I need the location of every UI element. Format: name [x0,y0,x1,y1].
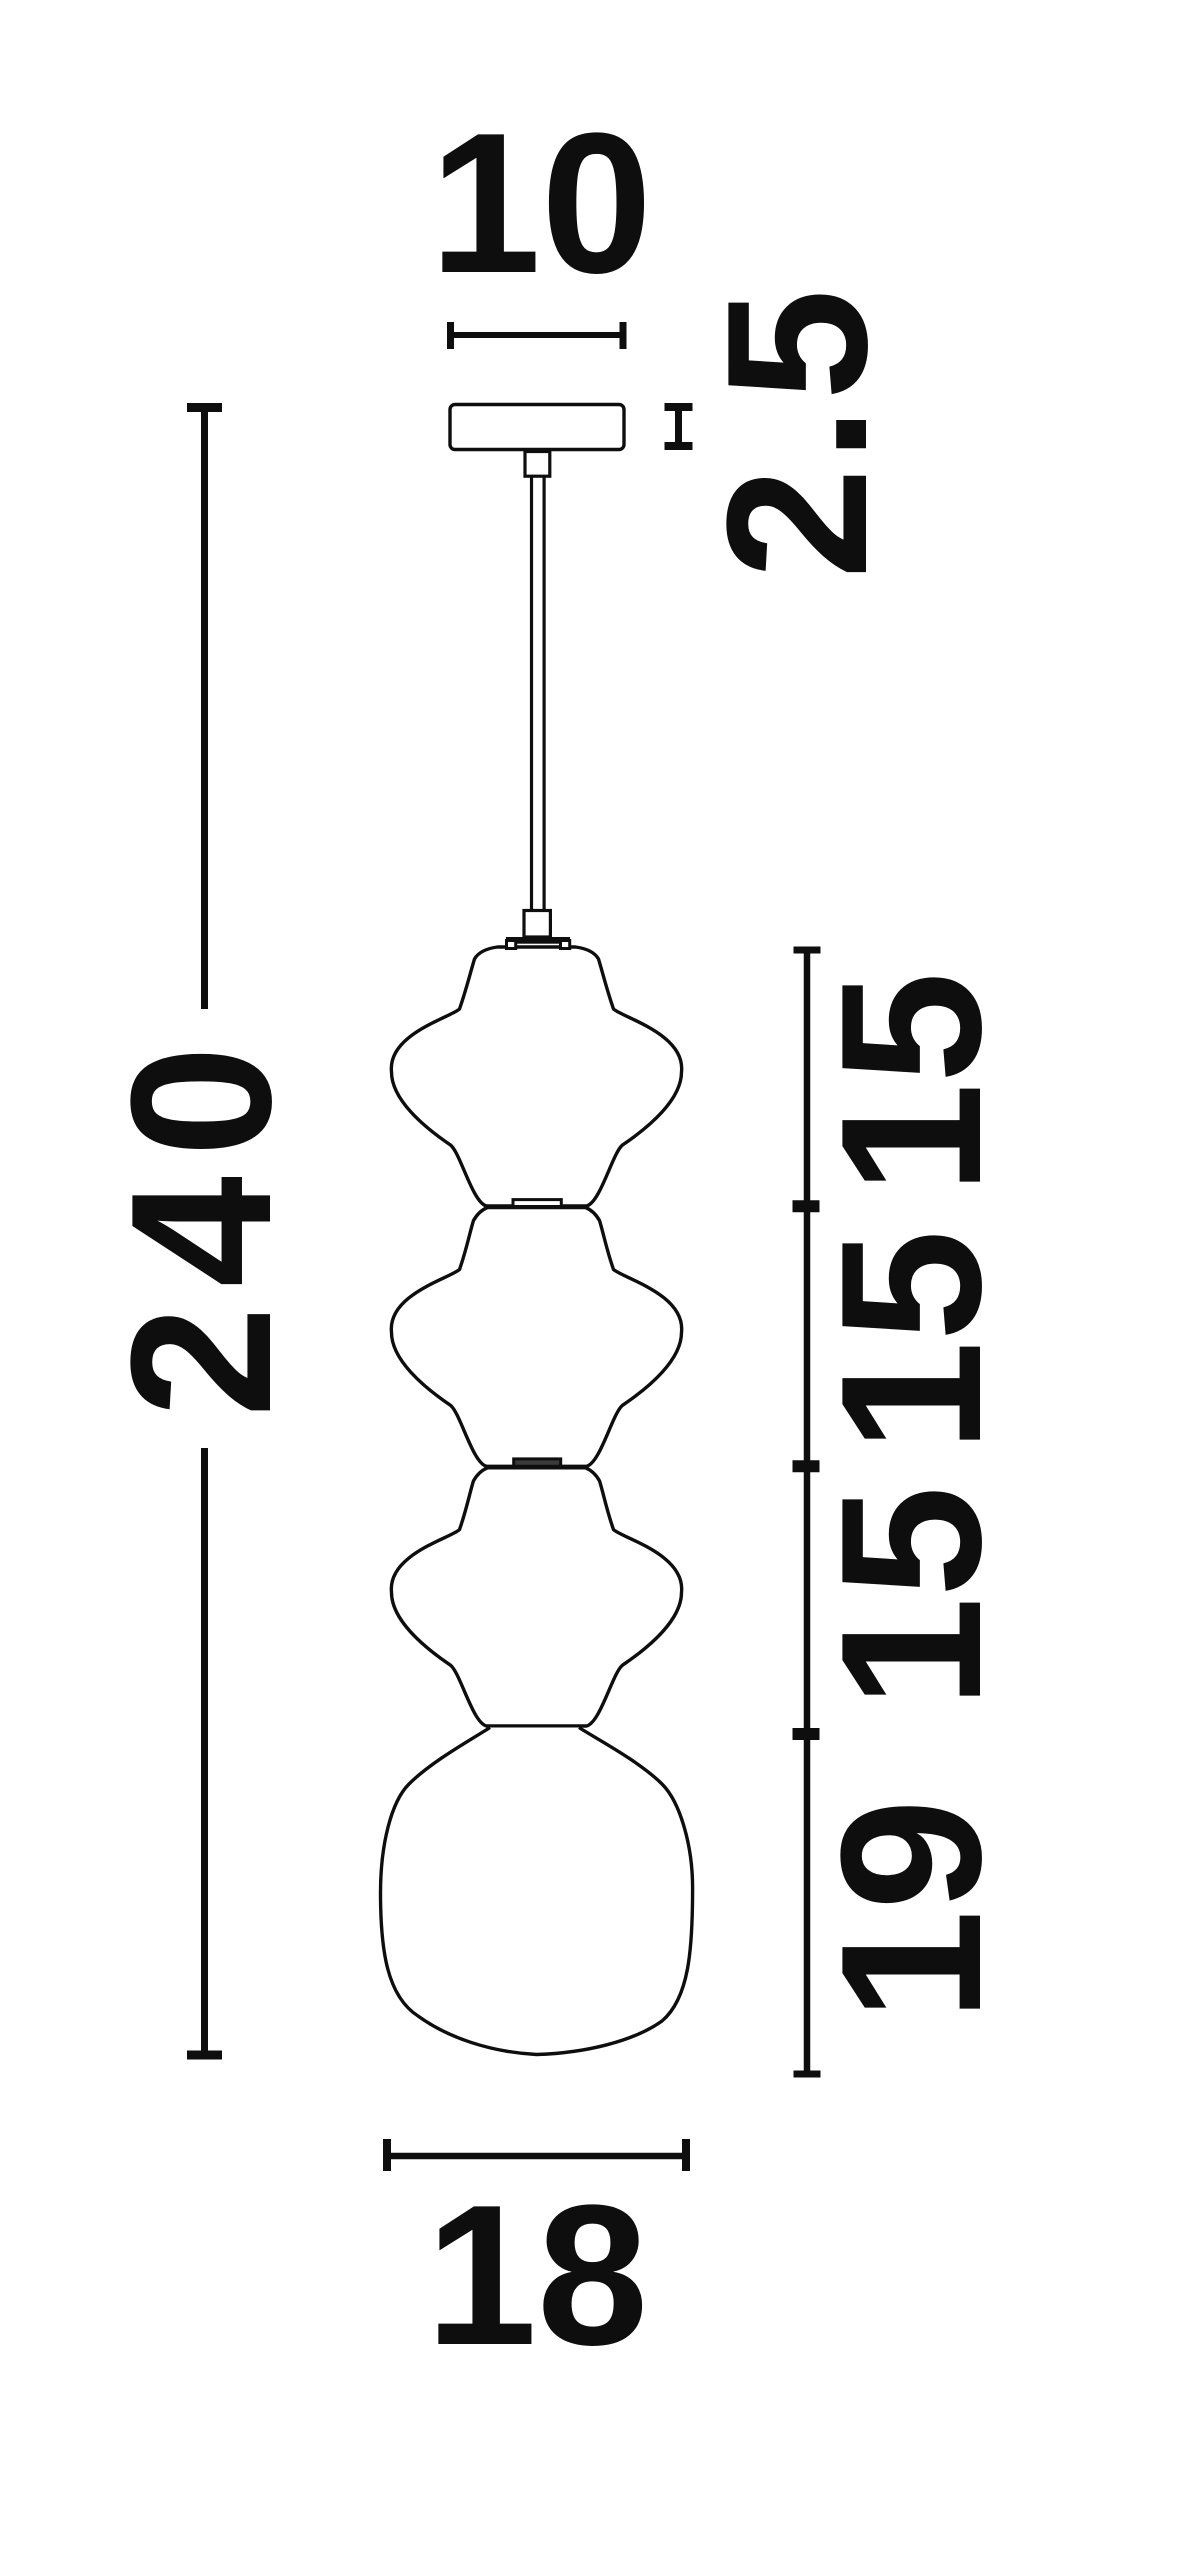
svg-text:19: 19 [800,1799,1023,2021]
svg-text:240: 240 [90,1027,313,1418]
svg-text:10: 10 [430,92,652,315]
svg-text:15: 15 [800,1230,1023,1452]
svg-text:18: 18 [426,2164,648,2387]
svg-text:15: 15 [800,1486,1023,1708]
svg-text:2.5: 2.5 [686,283,909,579]
svg-text:15: 15 [800,972,1023,1194]
